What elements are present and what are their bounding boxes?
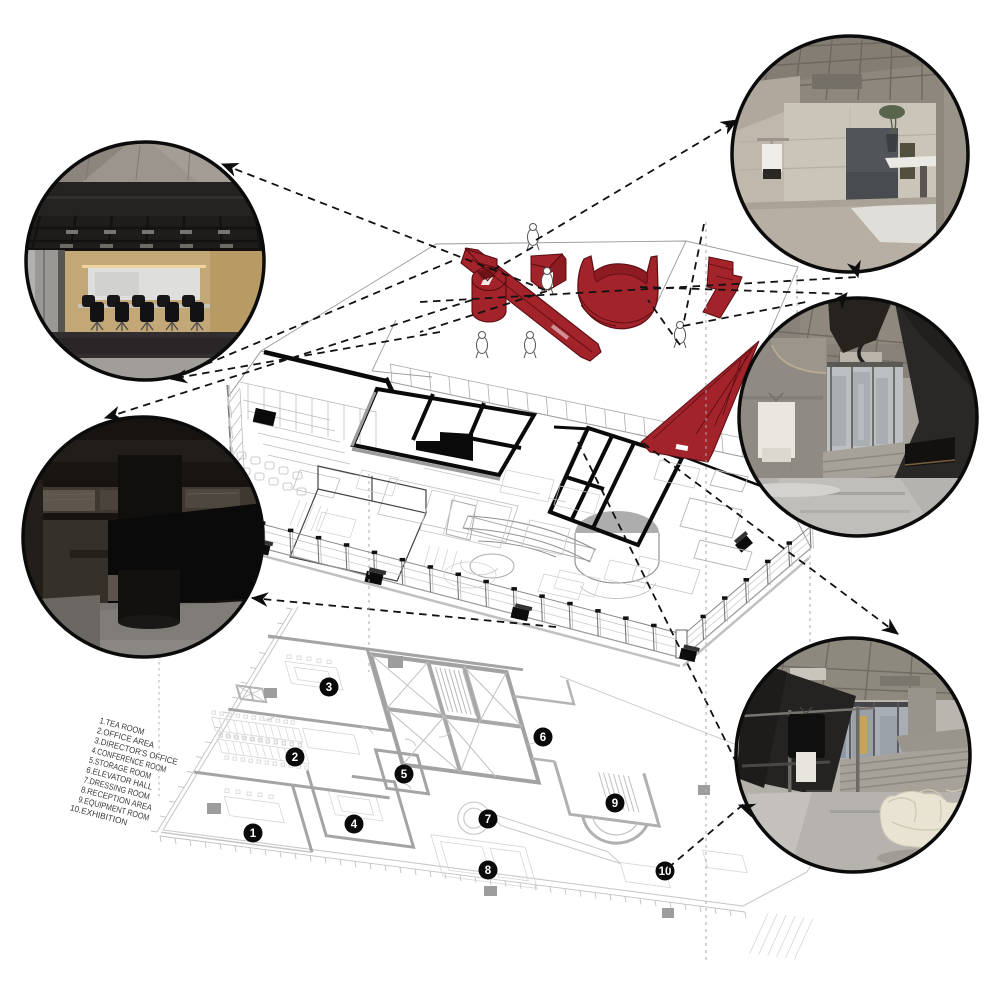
svg-text:4: 4	[351, 819, 358, 831]
svg-text:8: 8	[485, 865, 492, 877]
svg-text:1: 1	[250, 828, 257, 840]
svg-text:7: 7	[485, 814, 491, 826]
svg-text:5: 5	[401, 769, 408, 781]
svg-text:3: 3	[326, 682, 332, 694]
svg-text:9: 9	[612, 798, 618, 810]
svg-text:2: 2	[292, 752, 298, 764]
svg-text:6: 6	[540, 732, 546, 744]
